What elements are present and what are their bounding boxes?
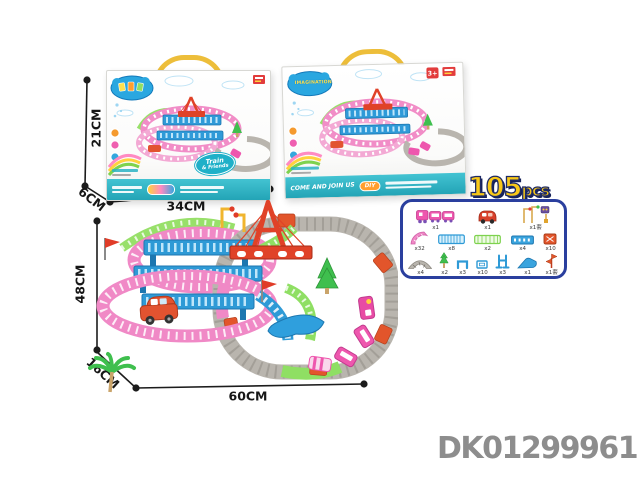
base-plate-icon	[476, 260, 488, 269]
box-logo-text: IMAGINATION	[295, 80, 332, 86]
parts-row-2: x32 x8	[405, 231, 562, 252]
part-gray-curve: x4	[408, 256, 432, 276]
part-connector: x10	[543, 233, 557, 252]
part-qty: x8	[448, 246, 455, 252]
box-front-banner	[107, 179, 270, 200]
part-blue-rail: x8	[438, 233, 465, 252]
badge-line2: & Friends	[202, 163, 229, 171]
green-fence-icon	[474, 234, 501, 245]
gray-curve-icon	[408, 256, 432, 269]
banner-text-left	[112, 186, 142, 193]
windmill-flag-icon	[545, 253, 558, 269]
box-brand-mark	[442, 67, 455, 76]
part-qty: x1套	[529, 225, 541, 231]
part-qty: x4	[519, 246, 526, 252]
u-bracket-icon	[456, 259, 469, 269]
parts-row-1: x1 x1	[405, 205, 562, 231]
feature-dot-icons	[111, 129, 119, 161]
part-green-fence: x2	[474, 234, 501, 252]
support-frame-icon	[495, 254, 510, 269]
banner-text-right	[385, 180, 437, 188]
diy-badge: DIY	[360, 180, 381, 191]
parts-list-panel: x1 x1	[400, 199, 567, 279]
package-box-front: Train & Friends	[106, 70, 271, 201]
part-qty: x32	[414, 246, 424, 252]
product-code: DK01299961	[437, 431, 637, 466]
part-base-plate: x10	[476, 260, 488, 276]
part-qty: x3	[459, 270, 466, 276]
box-angled-smallprint	[291, 166, 319, 174]
part-qty: x10	[477, 270, 487, 276]
part-toy-train: x1	[416, 208, 456, 231]
box-brand-mark	[253, 75, 265, 84]
part-qty: x1	[484, 225, 491, 231]
part-qty: x10	[545, 246, 555, 252]
pieces-count-unit: pcs	[521, 181, 548, 200]
box-front-art	[107, 71, 270, 179]
box-logo-cloud	[111, 76, 153, 100]
slide-ramp-icon	[517, 257, 538, 269]
part-qty: x2	[441, 270, 448, 276]
box-track-scene	[321, 87, 465, 167]
part-u-bracket: x3	[456, 259, 469, 276]
part-qty: x4	[417, 270, 424, 276]
assembled-track-set	[82, 200, 398, 396]
box-angled-face: IMAGINATION 3+ COME AND JOIN US DIY	[281, 62, 466, 200]
pink-curve-icon	[410, 231, 429, 245]
blue-track-icon	[511, 235, 534, 245]
part-windmill-flag: x1套	[545, 253, 558, 276]
part-tree: x2	[439, 252, 449, 276]
toy-car-icon	[477, 208, 498, 224]
toy-train-icon	[416, 208, 456, 224]
traffic-signs-icon	[519, 205, 551, 224]
part-slide-ramp: x1	[517, 257, 538, 276]
box-front-face: Train & Friends	[106, 70, 271, 201]
pine-tree-icon	[316, 258, 338, 294]
part-blue-track: x4	[511, 235, 534, 252]
box-front-smallprint	[112, 169, 138, 176]
product-photo-canvas: 21CM 6CM 34CM 48CM 16CM 60CM	[0, 0, 640, 480]
banner-text-right	[180, 186, 224, 193]
part-qty: x2	[485, 246, 492, 252]
age-badge: 3+	[426, 67, 438, 78]
part-qty: x3	[499, 270, 506, 276]
dim-box-height: 21CM	[89, 108, 104, 147]
banner-slogan: COME AND JOIN US	[290, 181, 355, 192]
part-qty: x1	[524, 270, 531, 276]
blue-rail-icon	[438, 233, 465, 245]
banner-pill	[147, 184, 175, 195]
part-traffic-signs: x1套	[519, 205, 551, 231]
palm-tree-icon	[90, 354, 134, 392]
box-angled-banner: COME AND JOIN US DIY	[285, 173, 465, 199]
part-qty: x1套	[546, 270, 558, 276]
part-support-frame: x3	[495, 254, 510, 276]
part-pink-curve: x32	[410, 231, 429, 252]
part-toy-car: x1	[477, 208, 498, 231]
package-box-angled: IMAGINATION 3+ COME AND JOIN US DIY	[281, 62, 466, 200]
feature-dot-icons	[289, 127, 298, 160]
connector-icon	[543, 233, 557, 245]
part-qty: x1	[432, 225, 439, 231]
tree-icon	[439, 252, 449, 269]
parts-row-3: x4 x2 x3 x10	[405, 252, 562, 276]
